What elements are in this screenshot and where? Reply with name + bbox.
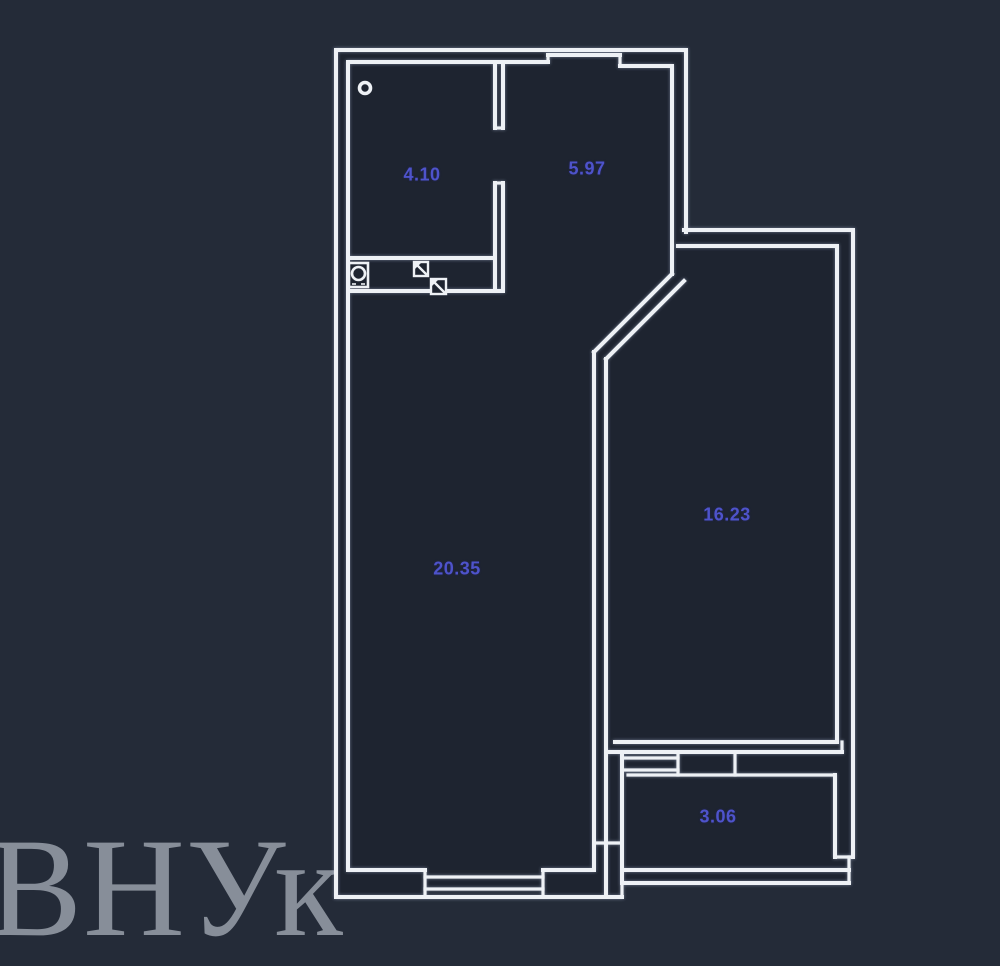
vent-shaft-icon: [431, 279, 446, 294]
room-area-label-bedroom: 16.23: [703, 505, 751, 526]
washing-machine-icon: [349, 263, 368, 287]
vent-shaft-icon: [414, 262, 428, 276]
room-area-label-hallway: 5.97: [568, 159, 605, 180]
room-area-label-balcony: 3.06: [699, 807, 736, 828]
room-area-label-bathroom: 4.10: [403, 165, 440, 186]
floor-plan-canvas: ВНУк: [0, 0, 1000, 953]
room-area-label-living-room: 20.35: [433, 559, 481, 580]
floor-plan: [0, 0, 1000, 953]
